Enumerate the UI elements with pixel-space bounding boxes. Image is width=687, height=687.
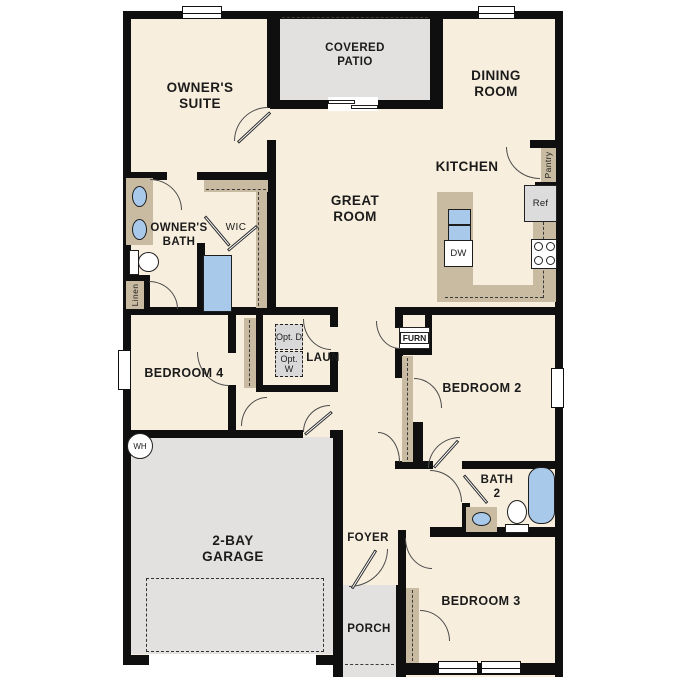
closet-rod-dashed <box>412 590 413 661</box>
sink-icon <box>472 512 491 526</box>
room-label-bedroom4: BEDROOM 4 <box>144 366 223 381</box>
wall <box>330 315 338 327</box>
sliding-door-panel <box>328 100 355 104</box>
room-label-bedroom2: BEDROOM 2 <box>442 381 521 396</box>
toilet-icon <box>138 252 159 272</box>
room-label-garage: 2-BAY GARAGE <box>193 533 273 565</box>
room-label-covered-patio: COVERED PATIO <box>320 42 390 69</box>
window <box>118 350 131 390</box>
burner-icon <box>546 256 555 265</box>
room-label-kitchen: KITCHEN <box>436 159 499 175</box>
wall <box>267 11 276 108</box>
water-heater: WH <box>127 433 153 459</box>
wall <box>228 315 236 353</box>
garage-door-dashed <box>146 578 324 652</box>
burner-icon <box>534 242 543 251</box>
sink-icon <box>132 219 147 240</box>
floor-plan: DW Ref Opt. D Opt. W FURN WH <box>0 0 687 687</box>
wall <box>555 11 563 677</box>
patio-edge-dashed <box>282 17 428 18</box>
room-label-porch: PORCH <box>347 623 391 637</box>
room-label-owners-suite: OWNER'S SUITE <box>157 80 243 112</box>
wall <box>333 585 343 677</box>
dishwasher: DW <box>444 240 473 267</box>
wall <box>256 315 263 392</box>
window <box>438 661 478 674</box>
room-label-laundry: LAUN <box>306 352 340 366</box>
optional-dryer-box: Opt. D <box>275 324 303 350</box>
room-label-owners-bath: OWNER'S BATH <box>148 222 210 249</box>
window <box>481 661 521 674</box>
wall <box>256 385 338 392</box>
window <box>478 6 515 19</box>
shower <box>203 255 232 312</box>
toilet-tank <box>505 524 529 533</box>
bathtub <box>528 467 555 524</box>
closet-rod-dashed <box>258 192 259 306</box>
window <box>182 6 222 19</box>
toilet-icon <box>507 500 527 524</box>
garage-apron <box>149 653 316 667</box>
room-label-bedroom3: BEDROOM 3 <box>441 594 520 609</box>
label-linen: Linen <box>130 284 140 307</box>
counter-dashed-line <box>445 297 543 298</box>
sink-icon <box>132 186 147 207</box>
hall-closet-shelf <box>244 318 256 388</box>
wall <box>395 307 563 315</box>
room-label-dining-room: DINING ROOM <box>456 68 536 100</box>
closet-rod-dashed <box>206 189 266 190</box>
kitchen-counter-bottom <box>437 285 556 302</box>
room-label-bath2: BATH 2 <box>477 474 517 501</box>
wall <box>197 172 276 180</box>
closet-rod-dashed <box>407 358 408 460</box>
wall <box>267 140 276 315</box>
wall <box>333 430 343 595</box>
optional-washer-box: Opt. W <box>275 351 303 377</box>
wall <box>396 585 406 677</box>
wall <box>398 530 406 537</box>
furnace-label: FURN <box>400 332 430 344</box>
porch-edge-dashed <box>345 664 394 665</box>
wall <box>412 422 423 466</box>
wall <box>123 11 131 665</box>
kitchen-sink-basin <box>448 209 471 225</box>
furnace: FURN <box>399 327 430 349</box>
window <box>551 368 564 408</box>
burner-icon <box>534 256 543 265</box>
closet-rod-dashed <box>249 320 250 386</box>
room-label-foyer: FOYER <box>347 532 389 546</box>
kitchen-sink-basin <box>448 225 471 241</box>
refrigerator: Ref <box>524 185 557 222</box>
wall <box>430 11 443 108</box>
sliding-door-panel <box>351 105 378 109</box>
wall <box>123 655 149 665</box>
room-label-wic: WIC <box>226 222 247 234</box>
label-pantry: Pantry <box>543 152 553 179</box>
room-label-great-room: GREAT ROOM <box>315 193 395 225</box>
burner-icon <box>546 242 555 251</box>
